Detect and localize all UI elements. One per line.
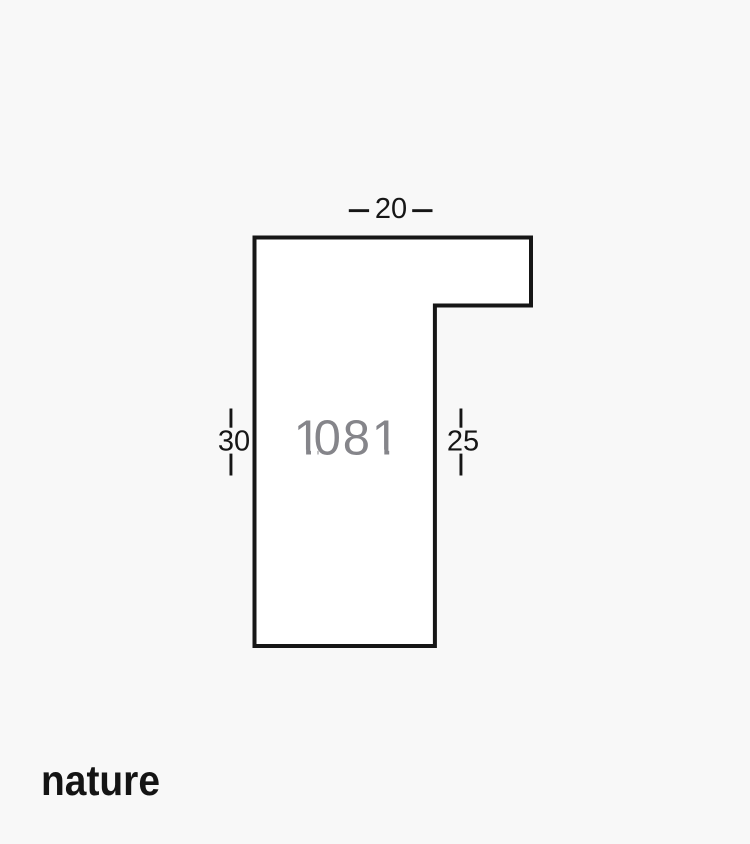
svg-text:20: 20 xyxy=(375,193,407,225)
svg-text:8: 8 xyxy=(343,412,370,466)
svg-text:25: 25 xyxy=(447,426,479,458)
svg-text:30: 30 xyxy=(218,426,250,458)
svg-text:0: 0 xyxy=(314,412,341,466)
svg-text:nature: nature xyxy=(41,757,160,805)
